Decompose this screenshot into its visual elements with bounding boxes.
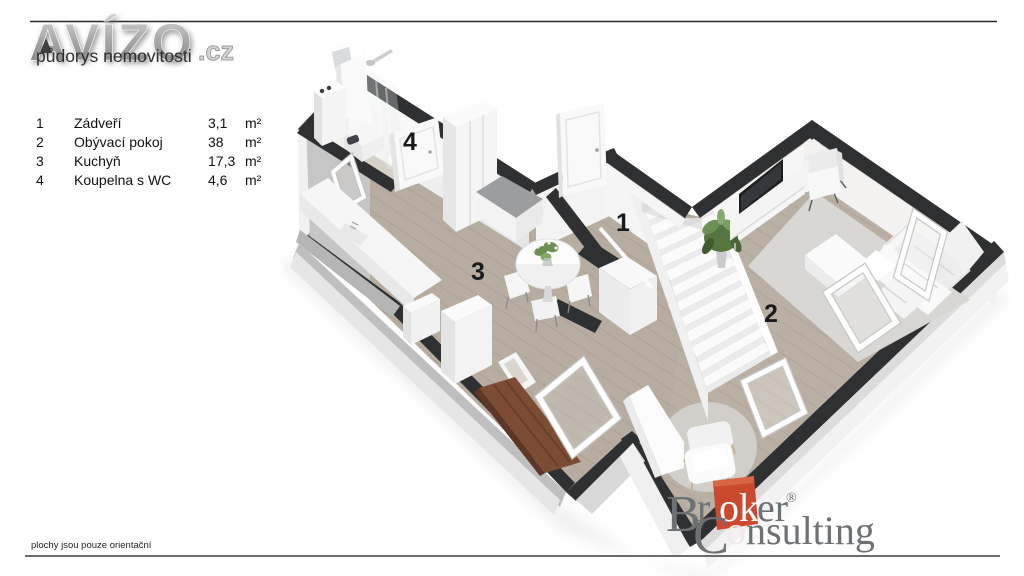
svg-text:3,1: 3,1 [208, 115, 228, 131]
svg-text:Koupelna s WC: Koupelna s WC [74, 172, 171, 188]
svg-text:půdorys nemovitosti: půdorys nemovitosti [36, 46, 192, 66]
svg-text:1: 1 [616, 209, 630, 237]
svg-text:m²: m² [245, 172, 262, 188]
svg-text:®: ® [786, 491, 797, 506]
svg-text:17,3: 17,3 [208, 153, 235, 169]
svg-text:.cz: .cz [198, 36, 234, 66]
svg-text:1: 1 [36, 115, 44, 131]
svg-text:Zádveří: Zádveří [74, 115, 122, 131]
svg-text:m²: m² [245, 134, 262, 150]
svg-text:3: 3 [36, 153, 44, 169]
svg-text:plochy jsou pouze orientační: plochy jsou pouze orientační [31, 540, 152, 551]
svg-text:m²: m² [245, 153, 262, 169]
svg-text:4: 4 [403, 128, 417, 156]
svg-text:4,6: 4,6 [208, 172, 228, 188]
svg-text:3: 3 [471, 258, 485, 286]
svg-text:2: 2 [764, 300, 778, 328]
svg-text:38: 38 [208, 134, 224, 150]
svg-text:o: o [726, 508, 746, 553]
svg-text:Obývací pokoj: Obývací pokoj [74, 134, 163, 150]
svg-text:nsulting: nsulting [746, 508, 875, 553]
svg-text:2: 2 [36, 134, 44, 150]
svg-text:m²: m² [245, 115, 262, 131]
svg-text:4: 4 [36, 172, 44, 188]
svg-text:Kuchyň: Kuchyň [74, 153, 121, 169]
